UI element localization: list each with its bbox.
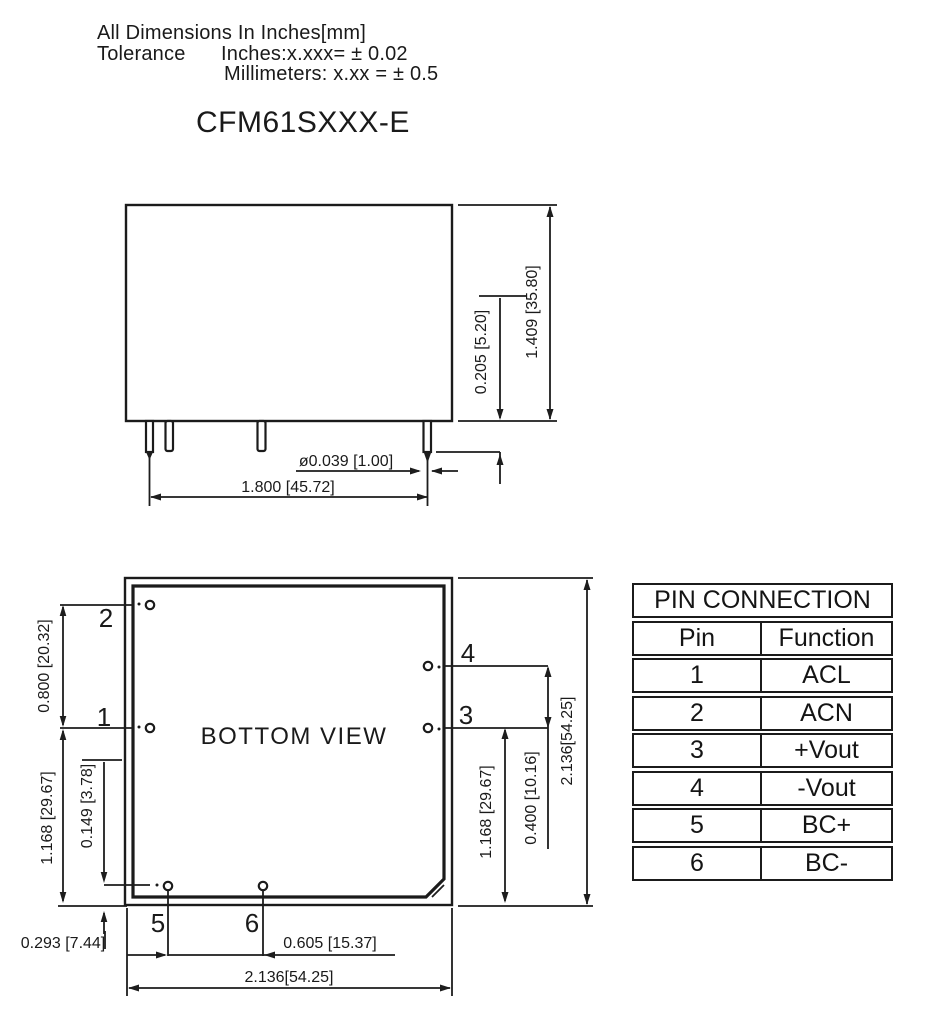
- table-row: 2 ACN: [632, 696, 893, 731]
- function-column-header: Function: [760, 623, 891, 654]
- dim-total-height: 1.409 [35.80]: [524, 265, 541, 358]
- dim-left-height: 1.168 [29.67]: [39, 771, 56, 864]
- pin-connection-table: PIN CONNECTION Pin Function 1 ACL 2 ACN …: [632, 583, 893, 881]
- pin-column-header: Pin: [634, 623, 760, 654]
- pin-function: ACN: [760, 698, 891, 729]
- pin-function: ACL: [760, 660, 891, 691]
- pin-function: +Vout: [760, 735, 891, 766]
- table-row: 4 -Vout: [632, 771, 893, 806]
- bottom-view-label: BOTTOM VIEW: [201, 723, 388, 750]
- dim-height: 2.136[54.25]: [559, 697, 576, 786]
- dim-pin-diameter: ø0.039 [1.00]: [299, 453, 393, 470]
- pin-function: BC+: [760, 810, 891, 841]
- pin-number: 4: [634, 773, 760, 804]
- dim-pin5-inset-x: 0.149 [3.78]: [79, 764, 96, 849]
- dim-pin3-pin4: 0.400 [10.16]: [523, 751, 540, 844]
- pin-number: 3: [634, 735, 760, 766]
- bottom-view: BOTTOM VIEW 2 1 4 3 5 6 0.800 [20.32] 1.…: [21, 578, 593, 996]
- dim-pin-standoff: 0.205 [5.20]: [473, 310, 490, 395]
- pin-number: 6: [634, 848, 760, 879]
- dim-pin-span: 1.800 [45.72]: [241, 479, 334, 496]
- dim-pin1-pin2: 0.800 [20.32]: [36, 619, 53, 712]
- pin-5-label: 5: [151, 908, 165, 938]
- dim-right-height: 1.168 [29.67]: [478, 765, 495, 858]
- side-view: ø0.039 [1.00] 1.800 [45.72] 1.409 [35.80…: [126, 205, 557, 506]
- pin-6-label: 6: [245, 908, 259, 938]
- pin-1-label: 1: [97, 702, 111, 732]
- pin-table-title: PIN CONNECTION: [654, 586, 871, 615]
- pin-4-label: 4: [461, 638, 475, 668]
- table-row: 6 BC-: [632, 846, 893, 881]
- datasheet-drawing-page: All Dimensions In Inches[mm] Tolerance I…: [0, 0, 928, 1024]
- pin-3-label: 3: [459, 700, 473, 730]
- dim-width: 2.136[54.25]: [245, 969, 334, 986]
- pin-table-header-row: Pin Function: [632, 621, 893, 656]
- dim-pin5-pin6: 0.605 [15.37]: [283, 935, 376, 952]
- pin-2-label: 2: [99, 603, 113, 633]
- bottom-view-dimension-lines: [58, 578, 593, 996]
- bottom-view-arrowheads: [60, 579, 591, 992]
- table-row: 1 ACL: [632, 658, 893, 693]
- pin-table-title-row: PIN CONNECTION: [632, 583, 893, 618]
- pin-number: 2: [634, 698, 760, 729]
- pin-function: BC-: [760, 848, 891, 879]
- pin-number: 5: [634, 810, 760, 841]
- table-row: 5 BC+: [632, 808, 893, 843]
- pin-function: -Vout: [760, 773, 891, 804]
- side-view-body: [126, 205, 452, 421]
- dim-pin5-inset-y: 0.293 [7.44]: [21, 935, 106, 952]
- pin-number: 1: [634, 660, 760, 691]
- table-row: 3 +Vout: [632, 733, 893, 768]
